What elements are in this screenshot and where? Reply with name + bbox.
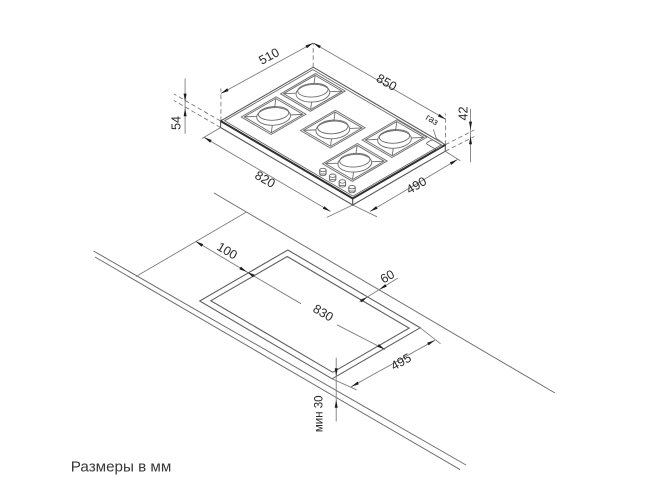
svg-text:490: 490 <box>404 174 429 197</box>
svg-text:мин 30: мин 30 <box>314 395 326 432</box>
svg-text:820: 820 <box>252 168 277 191</box>
svg-text:100: 100 <box>214 240 239 263</box>
svg-text:42: 42 <box>457 106 471 120</box>
svg-text:510: 510 <box>257 45 282 67</box>
svg-text:830: 830 <box>310 302 335 325</box>
svg-text:54: 54 <box>170 116 184 130</box>
svg-text:60: 60 <box>378 267 397 286</box>
svg-text:Размеры в мм: Размеры в мм <box>71 458 172 475</box>
